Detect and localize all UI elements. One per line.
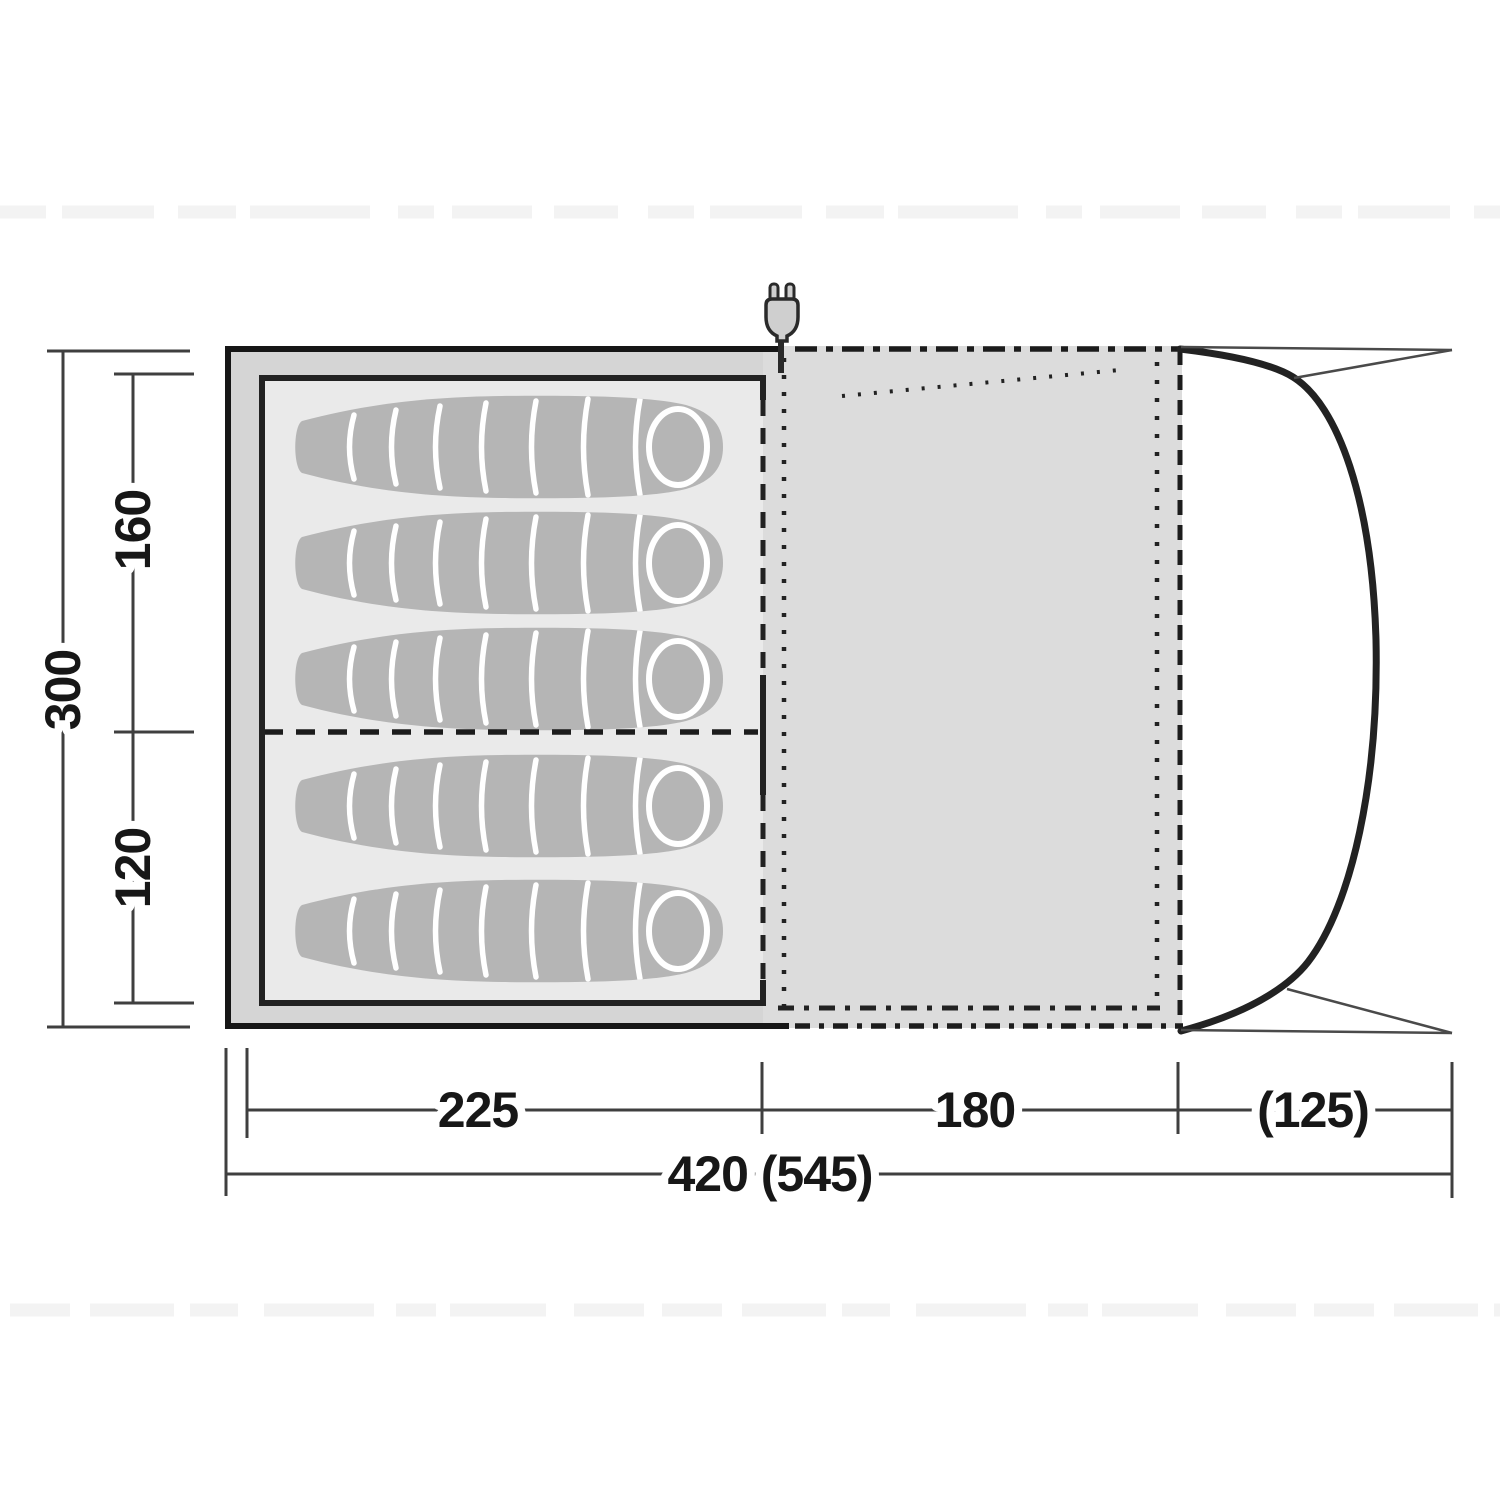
dim-length-total: 420 (545) — [667, 1146, 872, 1202]
tent-floorplan-diagram: 300 160 120 225 180 (125) 420 (545) — [0, 0, 1500, 1500]
dim-depth-inner-front: 160 — [105, 490, 161, 570]
sleeping-bag — [295, 755, 723, 857]
living-area — [763, 346, 1182, 1028]
dim-length-living: 180 — [935, 1082, 1015, 1138]
dim-length-canopy: (125) — [1257, 1082, 1369, 1138]
canopy-curve — [1180, 349, 1376, 1031]
sleeping-bag — [295, 880, 723, 982]
dim-depth-inner-rear: 120 — [105, 828, 161, 908]
dim-length-sleeping: 225 — [438, 1082, 519, 1138]
sleeping-bag — [295, 396, 723, 498]
canopy-guy-lines — [1181, 347, 1452, 1033]
floorplan-svg: 300 160 120 225 180 (125) 420 (545) — [0, 0, 1500, 1500]
sleeping-bags-group — [295, 396, 723, 982]
sleeping-bag — [295, 628, 723, 730]
dim-depth-total: 300 — [35, 650, 91, 730]
sleeping-bag — [295, 512, 723, 614]
